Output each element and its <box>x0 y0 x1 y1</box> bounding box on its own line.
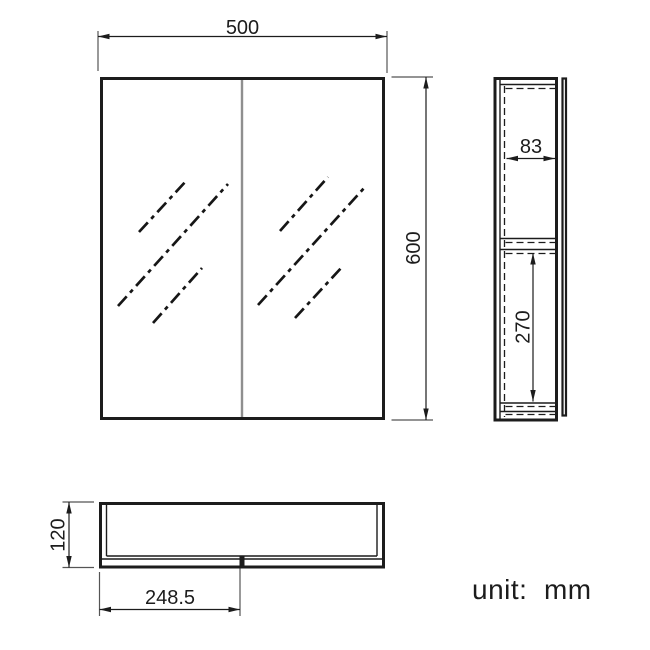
dimension-label-side-depth: 83 <box>520 136 542 158</box>
technical-drawing: 500 600 83 <box>0 0 650 650</box>
dimension-front-height: 600 <box>392 77 434 420</box>
front-view <box>102 79 384 419</box>
side-view-door-panel <box>563 79 567 416</box>
dimension-label-door-width: 248.5 <box>145 587 195 609</box>
mirror-hatch-right-door <box>258 177 365 318</box>
dimension-lower-section: 270 <box>513 253 535 402</box>
dimension-side-depth: 83 <box>507 136 556 159</box>
unit-note: unit: mm <box>472 574 592 605</box>
mirror-hatch-left-door <box>118 180 228 323</box>
dimension-label-front-width: 500 <box>226 17 259 39</box>
dimension-label-lower-section: 270 <box>513 310 535 343</box>
dimension-door-width: 248.5 <box>100 569 241 617</box>
door-meeting-gap <box>240 557 245 567</box>
side-view <box>495 79 566 421</box>
drawing-svg: 500 600 83 <box>0 0 650 650</box>
dimension-front-width: 500 <box>98 17 387 73</box>
plan-view <box>101 504 384 568</box>
dimension-label-front-height: 600 <box>403 231 425 264</box>
dimension-plan-depth: 120 <box>48 502 95 568</box>
dimension-label-plan-depth: 120 <box>48 518 70 551</box>
